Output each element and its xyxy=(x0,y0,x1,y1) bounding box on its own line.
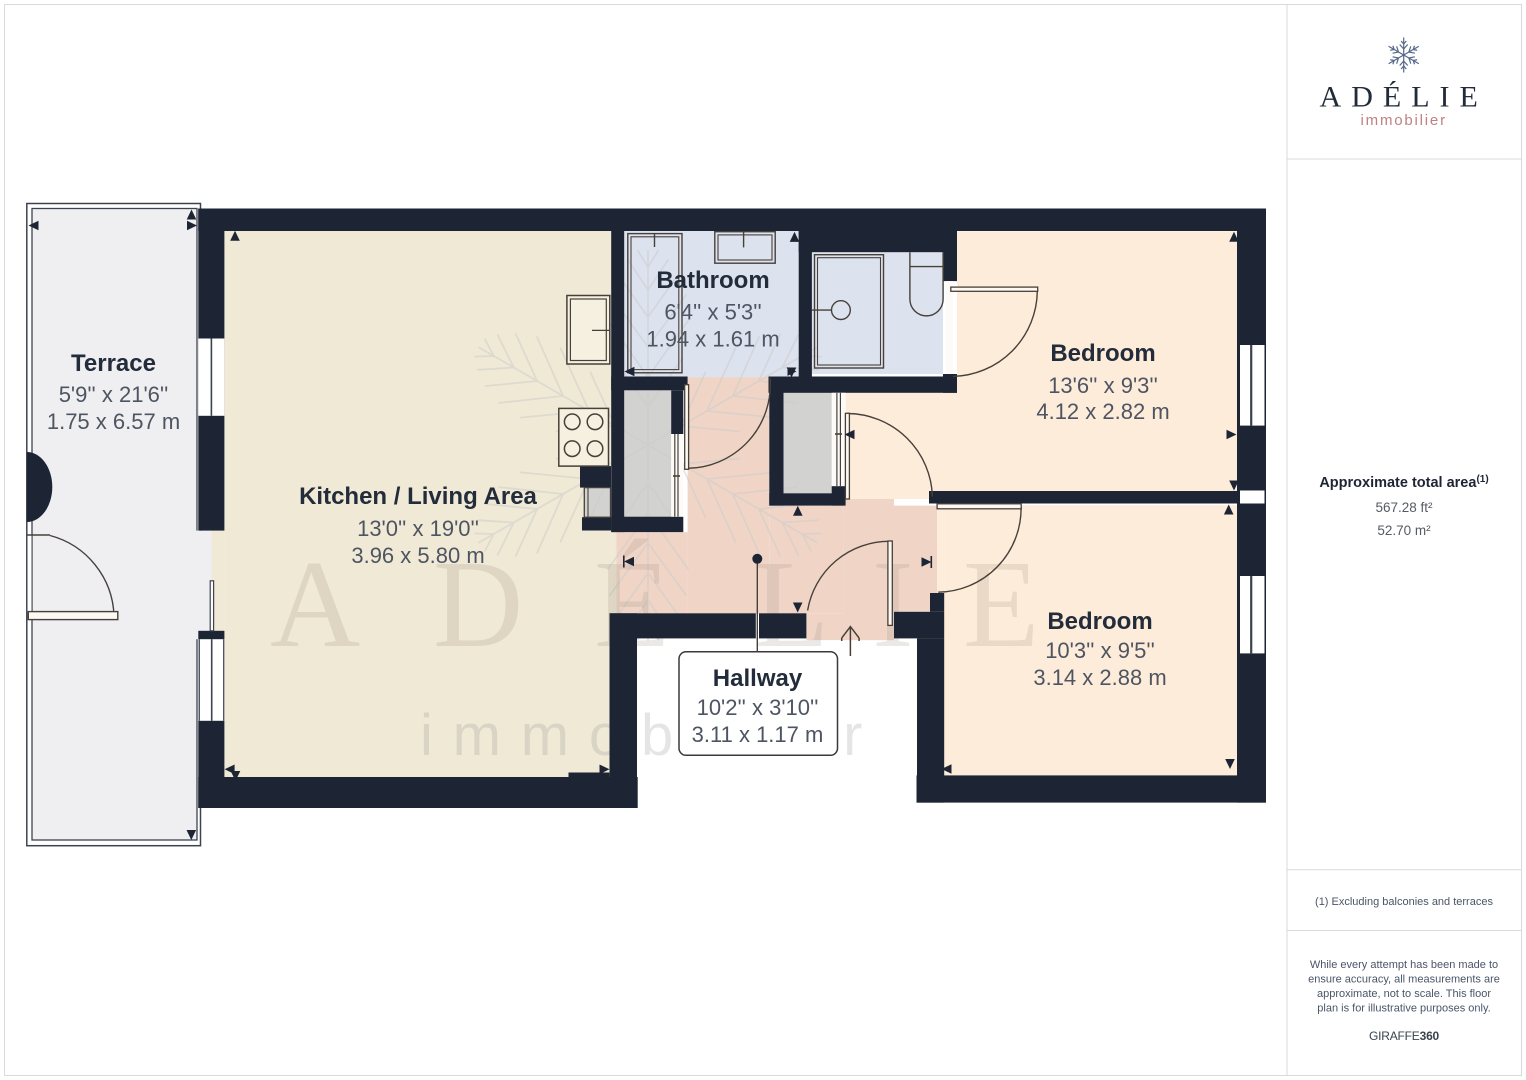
svg-text:Bedroom: Bedroom xyxy=(1047,608,1152,635)
svg-text:3.96 x 5.80 m: 3.96 x 5.80 m xyxy=(351,543,484,568)
svg-text:10'3'' x 9'5'': 10'3'' x 9'5'' xyxy=(1045,638,1155,663)
svg-text:immobilier: immobilier xyxy=(1361,112,1447,129)
svg-text:Hallway: Hallway xyxy=(713,665,803,692)
svg-text:ADÉLIE: ADÉLIE xyxy=(1320,81,1488,114)
svg-text:567.28 ft²: 567.28 ft² xyxy=(1375,500,1433,515)
svg-text:Bedroom: Bedroom xyxy=(1050,340,1155,367)
svg-text:While every attempt has been m: While every attempt has been made to xyxy=(1310,959,1498,971)
svg-text:approximate, not to scale. Thi: approximate, not to scale. This floor xyxy=(1317,988,1491,1000)
svg-text:13'0'' x 19'0'': 13'0'' x 19'0'' xyxy=(357,516,479,541)
svg-text:ensure accuracy, all measureme: ensure accuracy, all measurements are xyxy=(1308,974,1500,986)
svg-text:13'6'' x 9'3'': 13'6'' x 9'3'' xyxy=(1048,373,1158,398)
svg-text:10'2'' x 3'10'': 10'2'' x 3'10'' xyxy=(697,695,819,720)
svg-text:52.70 m²: 52.70 m² xyxy=(1377,523,1431,538)
svg-text:3.14 x 2.88 m: 3.14 x 2.88 m xyxy=(1033,665,1166,690)
svg-text:Bathroom: Bathroom xyxy=(656,267,769,294)
svg-text:5'9'' x 21'6'': 5'9'' x 21'6'' xyxy=(59,382,169,407)
svg-text:1.94 x 1.61 m: 1.94 x 1.61 m xyxy=(646,327,779,352)
svg-text:plan is for illustrative purpo: plan is for illustrative purposes only. xyxy=(1317,1003,1490,1015)
svg-text:4.12 x 2.82 m: 4.12 x 2.82 m xyxy=(1036,399,1169,424)
svg-text:6'4'' x 5'3'': 6'4'' x 5'3'' xyxy=(664,300,761,325)
svg-text:(1) Excluding balconies and te: (1) Excluding balconies and terraces xyxy=(1315,896,1493,908)
svg-text:Kitchen / Living Area: Kitchen / Living Area xyxy=(299,483,537,510)
svg-text:3.11 x 1.17 m: 3.11 x 1.17 m xyxy=(692,722,824,747)
svg-text:Terrace: Terrace xyxy=(71,350,156,377)
svg-text:Approximate total area(1): Approximate total area(1) xyxy=(1319,474,1488,491)
svg-text:1.75 x 6.57 m: 1.75 x 6.57 m xyxy=(47,409,180,434)
svg-text:GIRAFFE360: GIRAFFE360 xyxy=(1369,1029,1440,1043)
